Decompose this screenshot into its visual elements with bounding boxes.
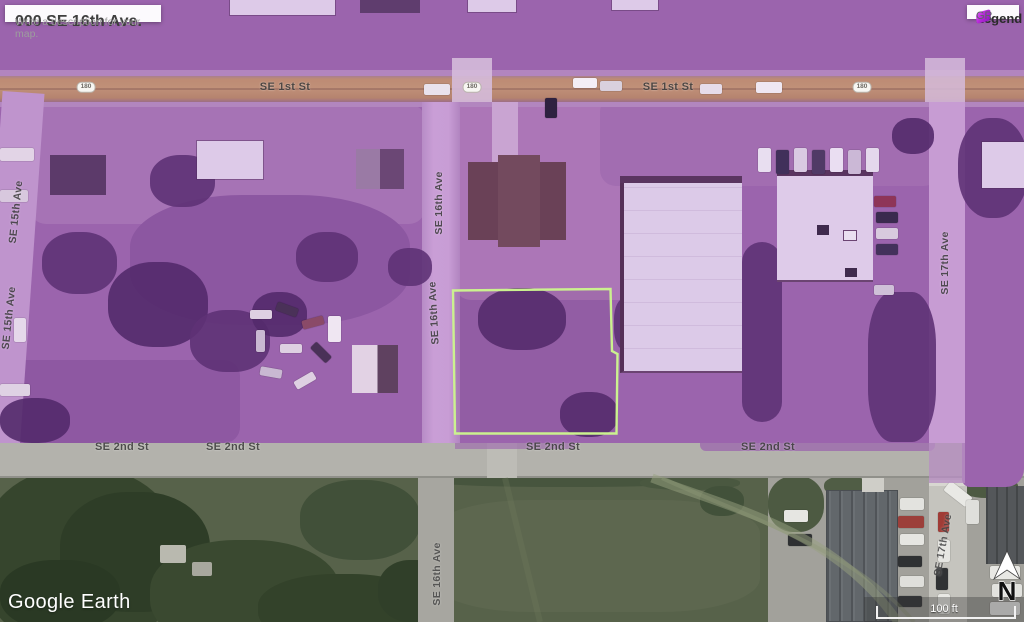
building-roof <box>982 142 1024 188</box>
rooftop-unit <box>817 225 829 235</box>
car <box>874 196 896 207</box>
highway-shield-180: 180 <box>463 82 482 93</box>
map-description[interactable]: Write a description for your map. <box>15 16 161 40</box>
car <box>293 371 317 390</box>
zoning-overlay-gr <box>0 0 1024 443</box>
tree <box>892 118 934 154</box>
building-roof <box>360 0 420 13</box>
compass-n-label: N <box>998 576 1017 604</box>
street-label-se-2nd-st: SE 2nd St <box>95 441 149 453</box>
car <box>876 228 898 239</box>
tree <box>868 292 936 442</box>
car <box>600 81 622 91</box>
car <box>700 84 722 94</box>
car <box>14 318 26 342</box>
tree <box>296 232 358 282</box>
north-arrow-icon <box>994 551 1020 579</box>
tree <box>560 392 618 437</box>
car <box>424 84 450 95</box>
car <box>848 150 861 174</box>
car <box>830 148 843 172</box>
street-label-se-16th-ave: SE 16th Ave <box>433 171 445 234</box>
building-roof <box>230 0 335 15</box>
car <box>545 98 557 118</box>
street-label-se-16th-ave: SE 16th Ave <box>431 542 443 605</box>
shed-roof <box>160 545 186 563</box>
rooftop-unit <box>843 230 857 241</box>
map-canvas[interactable]: 180 180 180 SE 1st St SE 1st St SE 2nd S… <box>0 0 1024 622</box>
street-label-se-1st-st: SE 1st St <box>260 81 310 93</box>
car <box>966 500 979 524</box>
car <box>874 285 894 295</box>
walkway <box>862 478 884 492</box>
truck <box>328 316 341 342</box>
rooftop-unit <box>845 268 857 277</box>
car <box>573 78 597 88</box>
map-info-card: 000 SE 16th Ave. Write a description for… <box>5 5 161 22</box>
legend-panel: Legend GR <box>967 5 1019 19</box>
car <box>259 366 282 379</box>
street-label-se-2nd-st: SE 2nd St <box>741 441 795 453</box>
overlay-spill <box>700 443 935 451</box>
building-roof-large <box>620 183 742 373</box>
field-patch <box>430 500 760 612</box>
highway-shield-180: 180 <box>853 82 872 93</box>
building-roof <box>197 141 263 179</box>
tree <box>300 480 420 560</box>
car <box>898 556 922 567</box>
building-roof <box>356 149 404 189</box>
tree <box>0 398 70 443</box>
car <box>876 244 898 255</box>
truck <box>0 384 30 396</box>
north-arrow[interactable]: N <box>990 550 1024 604</box>
shed-roof <box>352 345 398 393</box>
car <box>776 150 789 174</box>
tree <box>742 242 782 422</box>
tree <box>388 248 432 286</box>
car <box>788 534 812 546</box>
car <box>900 534 924 545</box>
tree <box>700 486 744 516</box>
truck <box>0 148 34 161</box>
car <box>758 148 771 172</box>
scale-bar-label: 100 ft <box>864 603 1024 615</box>
street-label-se-1st-st: SE 1st St <box>643 81 693 93</box>
overlay-spill <box>929 443 965 483</box>
building-roof <box>612 0 658 10</box>
road-crossing <box>925 58 965 102</box>
car <box>866 148 879 172</box>
car <box>310 342 332 364</box>
building-roof <box>468 0 516 12</box>
road-crossing <box>452 58 492 102</box>
car <box>812 150 825 174</box>
street-label-se-2nd-st: SE 2nd St <box>526 441 580 453</box>
car <box>794 148 807 172</box>
car <box>784 510 808 522</box>
tree <box>478 288 566 350</box>
grass-patch <box>768 476 824 532</box>
tree <box>42 232 117 294</box>
building-roof <box>50 155 106 195</box>
google-earth-logo: Google Earth <box>8 591 131 614</box>
ground-patch <box>600 96 940 186</box>
house-roof <box>498 155 540 247</box>
overlay-spill <box>962 443 1024 487</box>
car <box>900 498 924 510</box>
car <box>250 310 272 319</box>
car <box>280 344 302 353</box>
shed-roof <box>192 562 212 576</box>
car <box>756 82 782 93</box>
car <box>876 212 898 223</box>
car <box>900 576 924 587</box>
street-label-se-17th-ave: SE 17th Ave <box>939 231 951 294</box>
highway-shield-180: 180 <box>77 82 96 93</box>
car <box>898 516 924 528</box>
street-label-se-2nd-st: SE 2nd St <box>206 441 260 453</box>
car <box>256 330 265 352</box>
legend-item-label: GR <box>976 10 993 22</box>
